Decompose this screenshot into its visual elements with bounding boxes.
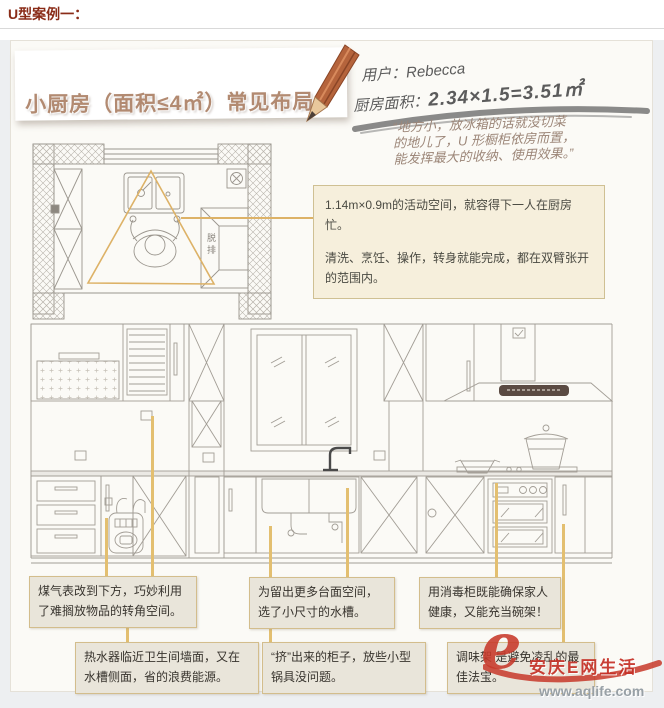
callout-squeezed-cabinet: “挤”出来的柜子，放些小型锅具没问题。 bbox=[262, 642, 426, 694]
title-ribbon: 小厨房（面积≤4㎡）常见布局 bbox=[15, 47, 348, 120]
connector-line bbox=[495, 483, 498, 578]
callout-gas-meter: 煤气表改到下方，巧妙利用了难搁放物品的转角空间。 bbox=[29, 576, 197, 628]
activity-space-info-box: 1.14m×0.9m的活动空间，就容得下一人在厨房忙。 清洗、烹饪、操作，转身就… bbox=[313, 185, 605, 299]
infographic-panel: 小厨房（面积≤4㎡）常见布局 用户：Rebecca 厨房面积：2.34×1.5=… bbox=[10, 40, 653, 692]
connector-line bbox=[269, 526, 272, 578]
article-heading: U型案例一： bbox=[8, 4, 88, 24]
watermark-url: www.aqlife.com bbox=[539, 683, 644, 699]
connector-line bbox=[346, 488, 349, 578]
info-paragraph: 1.14m×0.9m的活动空间，就容得下一人在厨房忙。 bbox=[325, 195, 593, 236]
user-quote: “地方小，放冰箱的话就没切菜 的地儿了，U 形橱柜依房而置， 能发挥最大的收纳、… bbox=[392, 110, 664, 167]
horizontal-divider bbox=[0, 28, 664, 29]
connector-line bbox=[562, 524, 565, 643]
watermark-site-name: 安庆E网生活 bbox=[529, 653, 637, 678]
callout-small-sink: 为留出更多台面空间，选了小尺寸的水槽。 bbox=[249, 577, 395, 629]
kitchen-elevation-drawing bbox=[29, 321, 614, 566]
leader-line bbox=[181, 217, 323, 219]
floor-plan-drawing bbox=[29, 141, 319, 321]
callout-water-heater: 热水器临近卫生间墙面，又在水槽侧面，省的浪费能源。 bbox=[75, 642, 259, 694]
info-paragraph: 清洗、烹饪、操作，转身就能完成，都在双臂张开的范围内。 bbox=[325, 248, 593, 289]
connector-line bbox=[105, 518, 108, 576]
exhaust-hood-label: 脱排 bbox=[205, 233, 218, 257]
top-white-band bbox=[0, 0, 664, 40]
connector-line bbox=[151, 416, 154, 576]
user-name-handwriting: 用户：Rebecca bbox=[360, 57, 465, 85]
infographic-title: 小厨房（面积≤4㎡）常见布局 bbox=[25, 86, 315, 119]
